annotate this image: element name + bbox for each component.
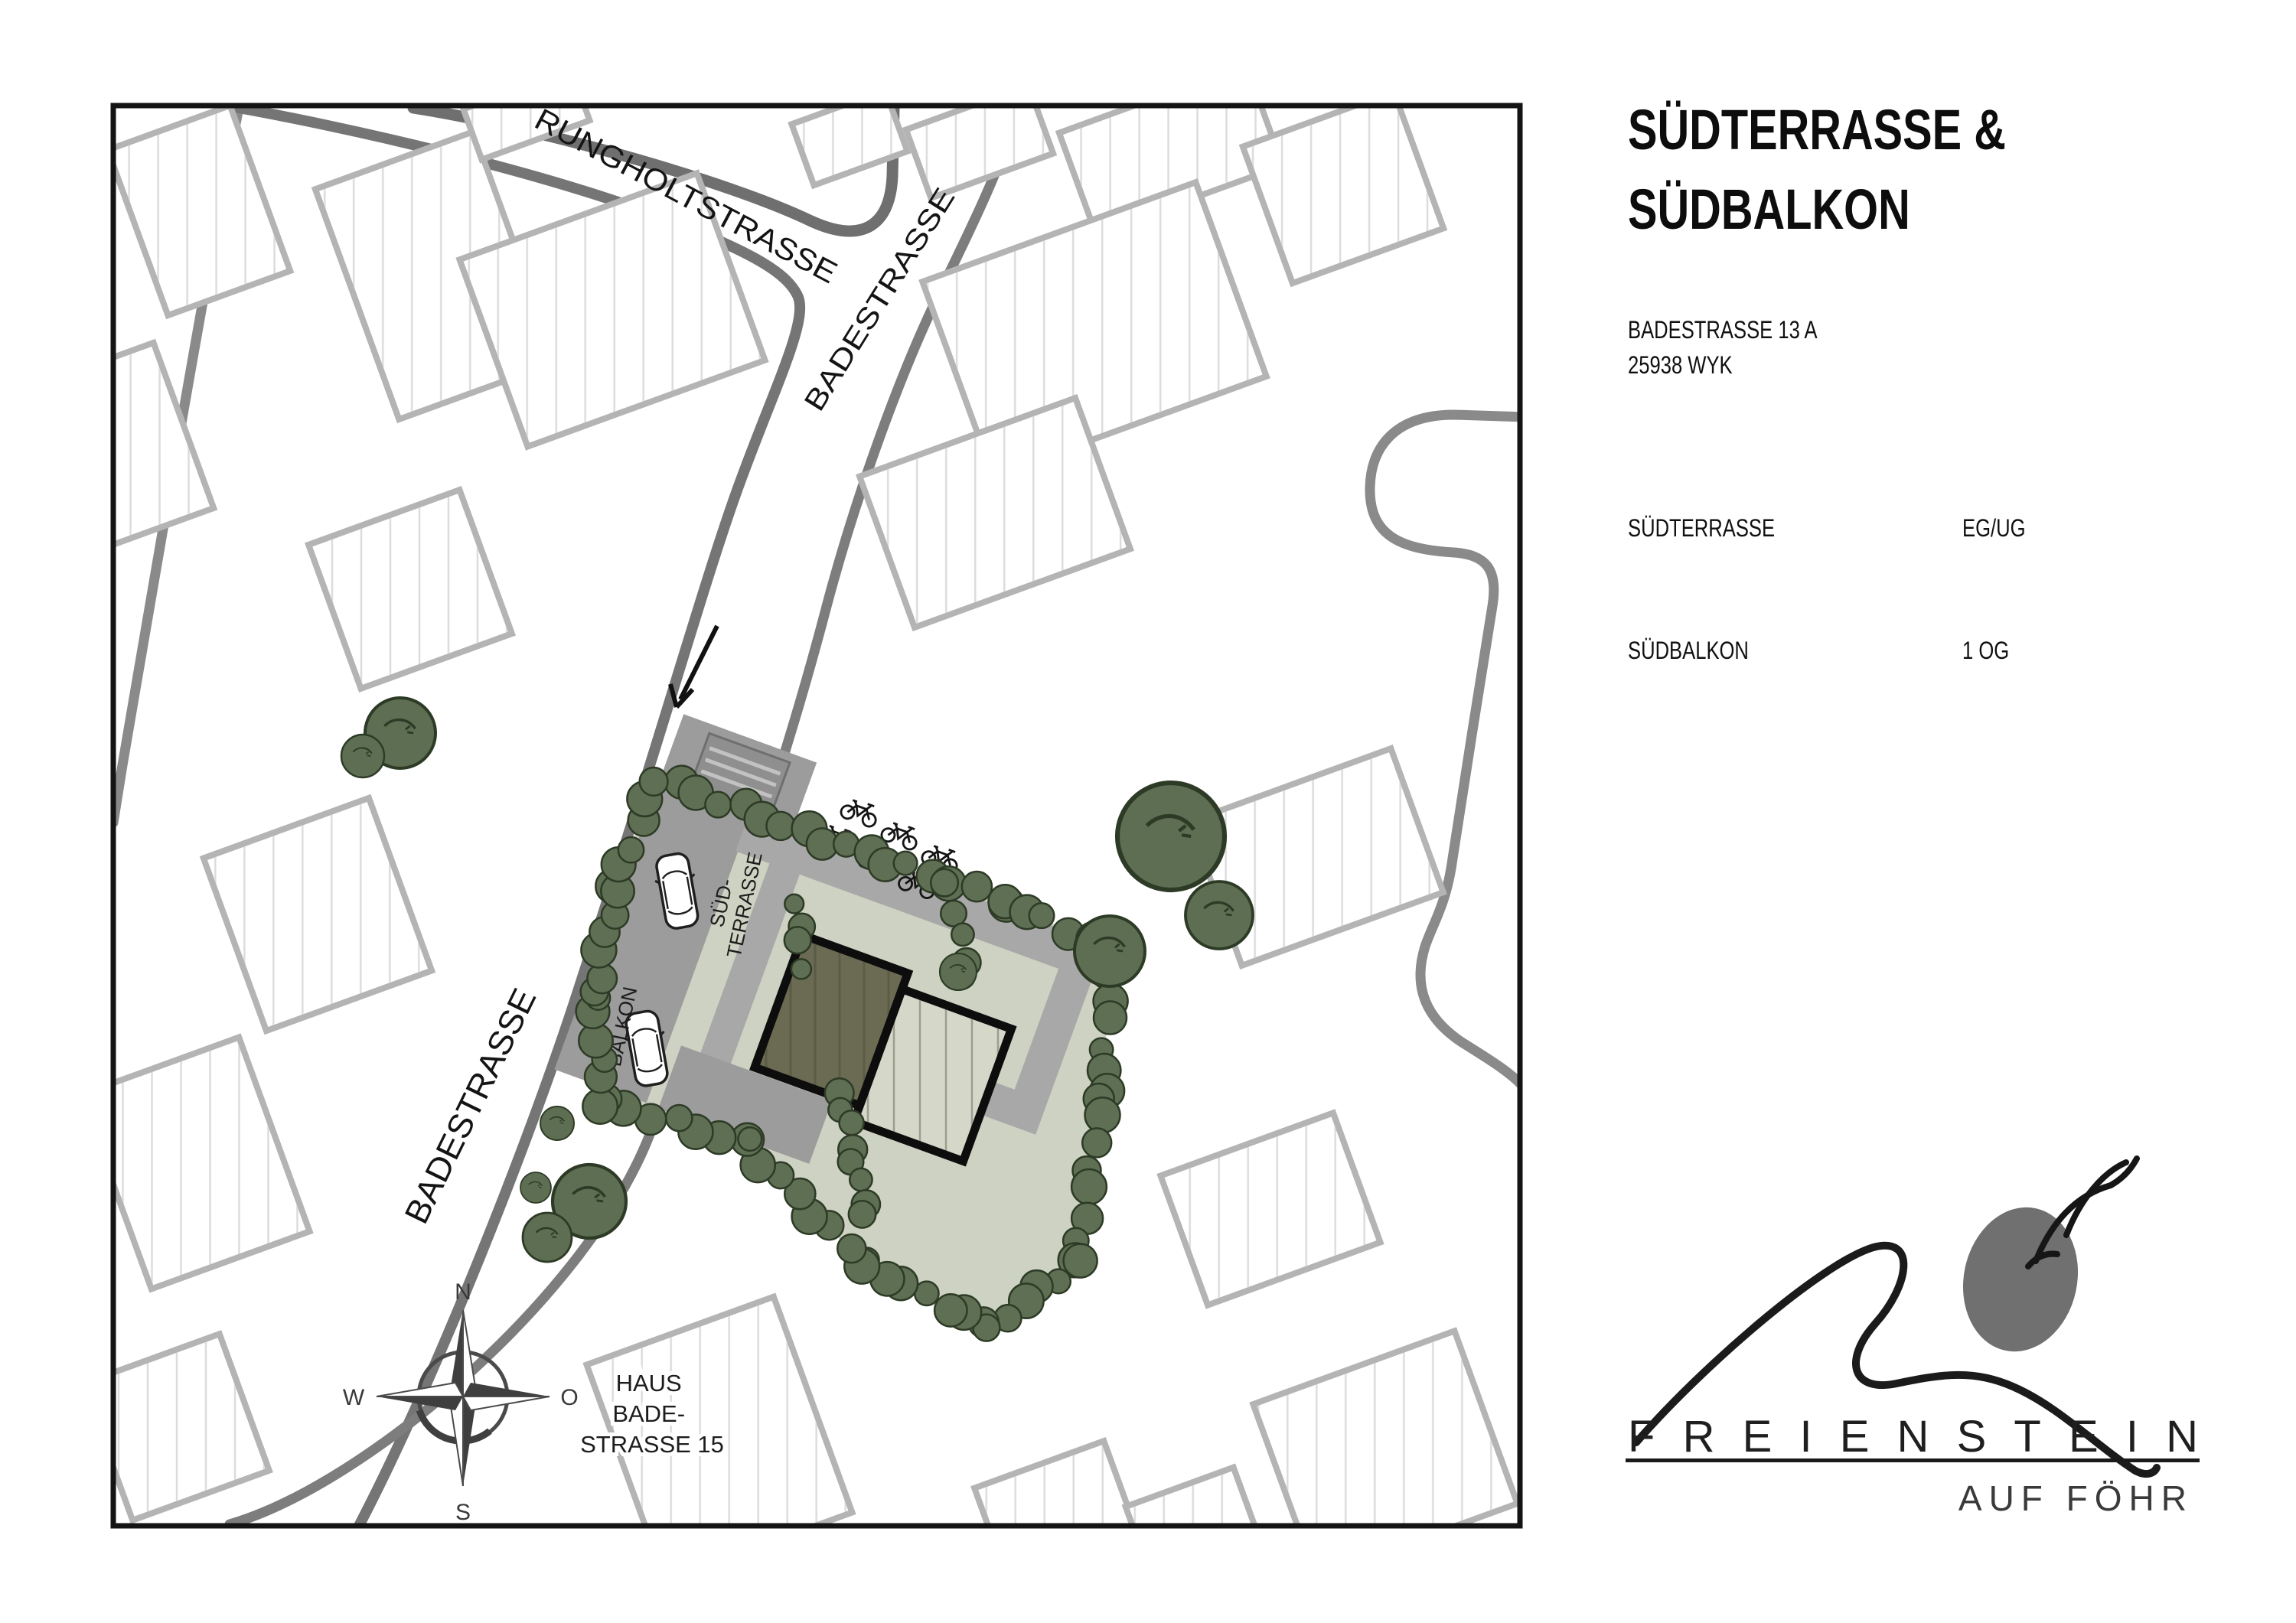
hedge-bush bbox=[951, 924, 974, 946]
tree-icon bbox=[1075, 916, 1145, 986]
compass-west-label: W bbox=[343, 1385, 365, 1410]
hedge-bush bbox=[784, 895, 804, 914]
hedge-bush bbox=[640, 768, 668, 796]
hedge-bush bbox=[705, 792, 731, 818]
hedge-bush bbox=[791, 959, 811, 979]
hedge-bush bbox=[894, 852, 918, 875]
brand-underline bbox=[1626, 1458, 2200, 1462]
compass-south-label: S bbox=[455, 1500, 471, 1525]
hedge-bush bbox=[618, 837, 644, 862]
hedge-bush bbox=[931, 869, 958, 897]
hedge-bush bbox=[850, 1168, 872, 1191]
hedge-bush bbox=[962, 872, 992, 901]
hedge-bush bbox=[1071, 1169, 1107, 1204]
page-title: SÜDTERRASSE & SÜDBALKON bbox=[1628, 90, 2112, 249]
hedge-bush bbox=[666, 1105, 692, 1131]
hedge-bush bbox=[1094, 1002, 1127, 1035]
tree-icon bbox=[520, 1172, 551, 1203]
hedge-bush bbox=[840, 1110, 864, 1135]
unit-1-floor: EG/UG bbox=[1962, 514, 2041, 543]
hedge-bush bbox=[1029, 903, 1055, 928]
unit-1-name: SÜDTERRASSE bbox=[1628, 514, 1812, 543]
title-line-1: SÜDTERRASSE & bbox=[1628, 90, 2006, 170]
compass-east-label: O bbox=[560, 1385, 578, 1410]
compass-north-label: N bbox=[455, 1279, 471, 1305]
tree-icon bbox=[1117, 783, 1225, 890]
brand-tagline: AUF FÖHR bbox=[1958, 1478, 2193, 1518]
tree-icon bbox=[523, 1213, 572, 1262]
freienstein-logo: FREIENSTEIN AUF FÖHR bbox=[1569, 1094, 2296, 1623]
hedge-bush bbox=[784, 927, 811, 953]
address-block: BADESTRASSE 13 A 25938 WYK bbox=[1628, 312, 1864, 383]
page: { "panel": { "title_line1": "SÜDTERRASSE… bbox=[0, 0, 2296, 1623]
hedge-bush bbox=[1082, 1128, 1111, 1157]
hedge-bush bbox=[582, 1089, 618, 1124]
tree-icon bbox=[1186, 882, 1253, 949]
title-line-2: SÜDBALKON bbox=[1628, 170, 1910, 249]
hedge-bush bbox=[767, 812, 795, 840]
site-map: SÜD- TERRASSE SÜD- BALKON RUNGHOLTSTRASS… bbox=[0, 0, 1569, 1623]
hedge-bush bbox=[739, 1127, 762, 1151]
address-line-2: 25938 WYK bbox=[1628, 347, 1733, 383]
hedge-bush bbox=[849, 1201, 876, 1227]
tree-icon bbox=[540, 1106, 574, 1140]
unit-2-name: SÜDBALKON bbox=[1628, 637, 1779, 665]
hedge-bush bbox=[1064, 1244, 1097, 1278]
tree-icon bbox=[940, 953, 977, 990]
hedge-bush bbox=[934, 1294, 967, 1326]
hedge-bush bbox=[837, 1234, 866, 1263]
hedge-bush bbox=[1085, 1097, 1120, 1133]
tree-icon bbox=[341, 735, 384, 777]
unit-2-floor: 1 OG bbox=[1962, 637, 2020, 665]
address-line-1: BADESTRASSE 13 A bbox=[1628, 312, 1818, 347]
